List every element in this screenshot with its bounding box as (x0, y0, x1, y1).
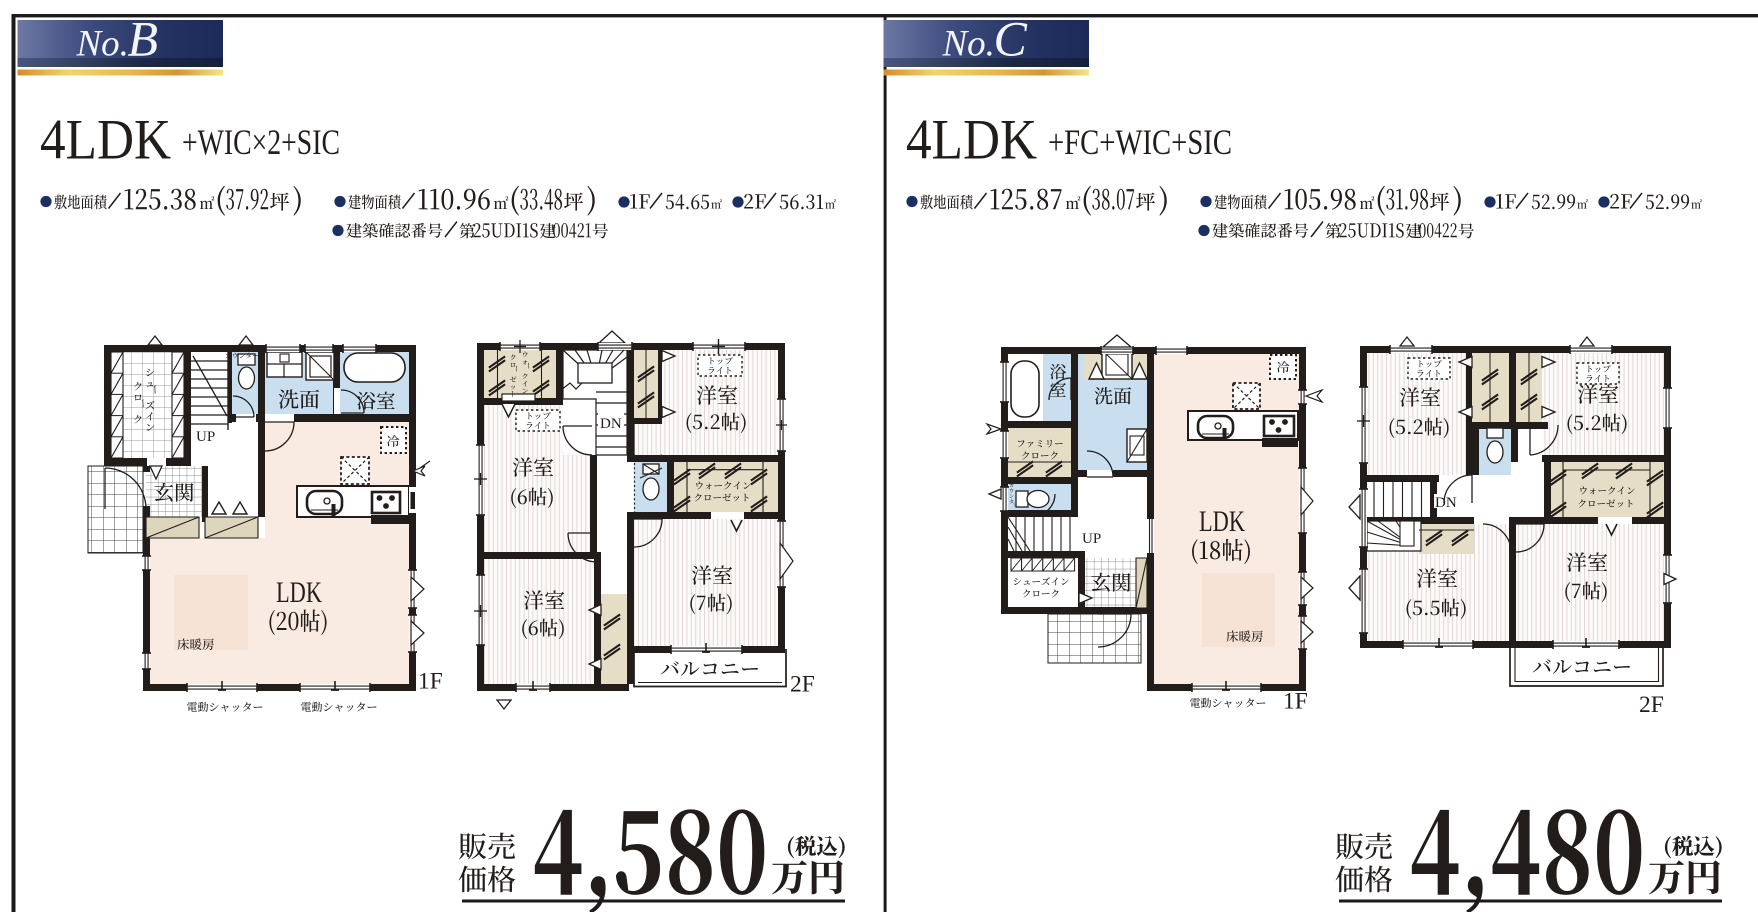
svg-text:+FC+WIC+SIC: +FC+WIC+SIC (1048, 122, 1232, 162)
svg-text:UP: UP (1082, 531, 1101, 547)
svg-text:LDK: LDK (276, 576, 322, 609)
svg-text:+WIC×2+SIC: +WIC×2+SIC (182, 122, 340, 162)
svg-text:1F: 1F (1283, 689, 1308, 715)
svg-text:No.: No. (76, 24, 129, 65)
svg-text:4LDK: 4LDK (906, 109, 1037, 172)
svg-text:LDK: LDK (1199, 505, 1245, 538)
svg-text:C: C (994, 11, 1028, 67)
svg-text:4LDK: 4LDK (40, 109, 171, 172)
svg-text:1F: 1F (418, 669, 443, 695)
svg-text:2F: 2F (1639, 692, 1664, 718)
svg-text:No.: No. (942, 24, 995, 65)
svg-text:DN: DN (1435, 495, 1457, 511)
svg-text:DN: DN (600, 416, 622, 432)
svg-text:2F: 2F (790, 672, 815, 698)
svg-text:UP: UP (196, 429, 215, 445)
svg-text:B: B (128, 11, 159, 67)
